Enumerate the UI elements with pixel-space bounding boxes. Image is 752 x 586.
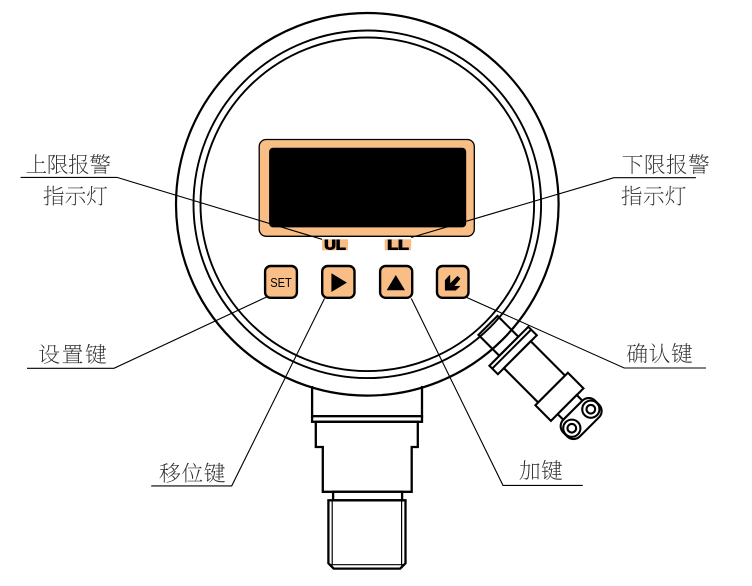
svg-text:UL: UL (324, 238, 346, 253)
svg-text:SET: SET (270, 276, 292, 290)
svg-text:LL: LL (387, 238, 409, 253)
